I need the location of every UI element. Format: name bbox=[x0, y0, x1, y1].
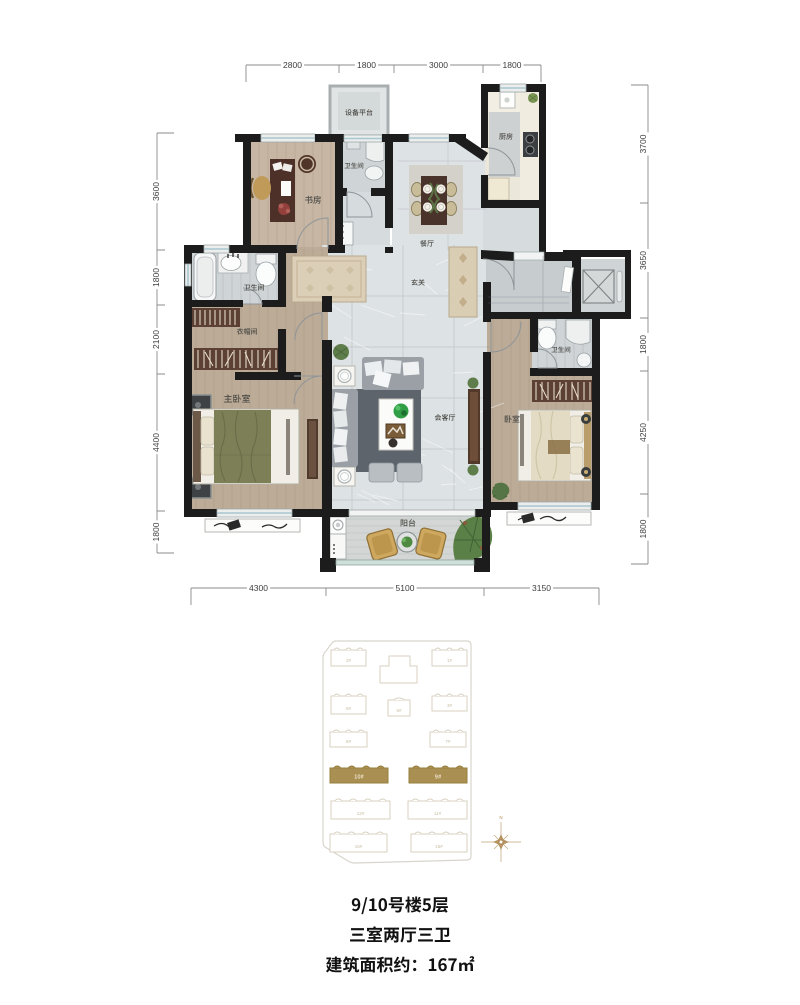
svg-text:12#: 12# bbox=[357, 811, 365, 816]
svg-text:1800: 1800 bbox=[357, 60, 376, 70]
svg-text:4400: 4400 bbox=[151, 433, 161, 452]
svg-text:5#: 5# bbox=[396, 708, 402, 713]
svg-text:1800: 1800 bbox=[151, 522, 161, 541]
svg-text:15#: 15# bbox=[435, 844, 443, 849]
svg-text:2800: 2800 bbox=[283, 60, 302, 70]
svg-text:3700: 3700 bbox=[638, 134, 648, 153]
svg-text:3650: 3650 bbox=[638, 251, 648, 270]
svg-text:1800: 1800 bbox=[638, 519, 648, 538]
svg-text:2#: 2# bbox=[346, 658, 352, 663]
svg-text:4250: 4250 bbox=[638, 423, 648, 442]
svg-text:4300: 4300 bbox=[249, 583, 268, 593]
svg-text:1800: 1800 bbox=[638, 335, 648, 354]
svg-text:7#: 7# bbox=[445, 739, 451, 744]
svg-text:3000: 3000 bbox=[429, 60, 448, 70]
svg-text:5100: 5100 bbox=[396, 583, 415, 593]
svg-text:8#: 8# bbox=[346, 739, 352, 744]
svg-text:11#: 11# bbox=[434, 811, 442, 816]
svg-text:1#: 1# bbox=[447, 658, 453, 663]
svg-text:N: N bbox=[499, 815, 502, 820]
svg-text:3#: 3# bbox=[447, 703, 453, 708]
svg-text:6#: 6# bbox=[346, 706, 352, 711]
svg-text:2100: 2100 bbox=[151, 330, 161, 349]
svg-text:3150: 3150 bbox=[532, 583, 551, 593]
svg-text:3600: 3600 bbox=[151, 182, 161, 201]
svg-text:16#: 16# bbox=[355, 844, 363, 849]
svg-text:1800: 1800 bbox=[151, 268, 161, 287]
svg-text:1800: 1800 bbox=[503, 60, 522, 70]
